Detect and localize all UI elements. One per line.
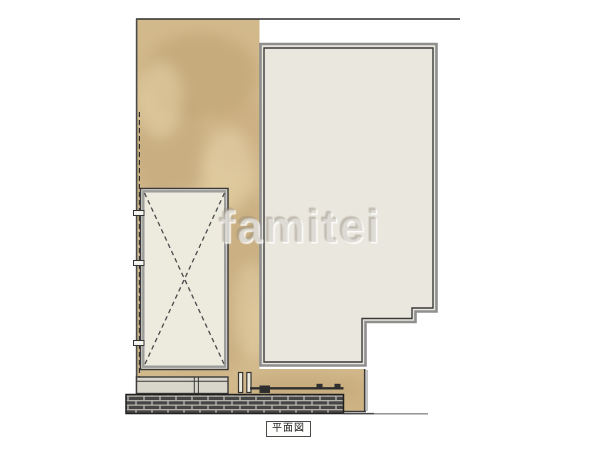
- fence-post: [335, 384, 341, 389]
- carport-structure: [141, 189, 229, 370]
- building-outline-shadow: [261, 44, 437, 366]
- drawing-caption: 平面図: [266, 421, 311, 437]
- site-plan-page: famitei 平面図: [0, 0, 600, 450]
- terrace-step: [137, 377, 229, 394]
- site-plan-drawing: [0, 0, 600, 450]
- building-footprint: [261, 44, 437, 366]
- carport-outline: [141, 189, 229, 370]
- brick-block-wall: [126, 395, 344, 414]
- fence-post: [317, 384, 323, 389]
- fence-pillar: [260, 386, 271, 394]
